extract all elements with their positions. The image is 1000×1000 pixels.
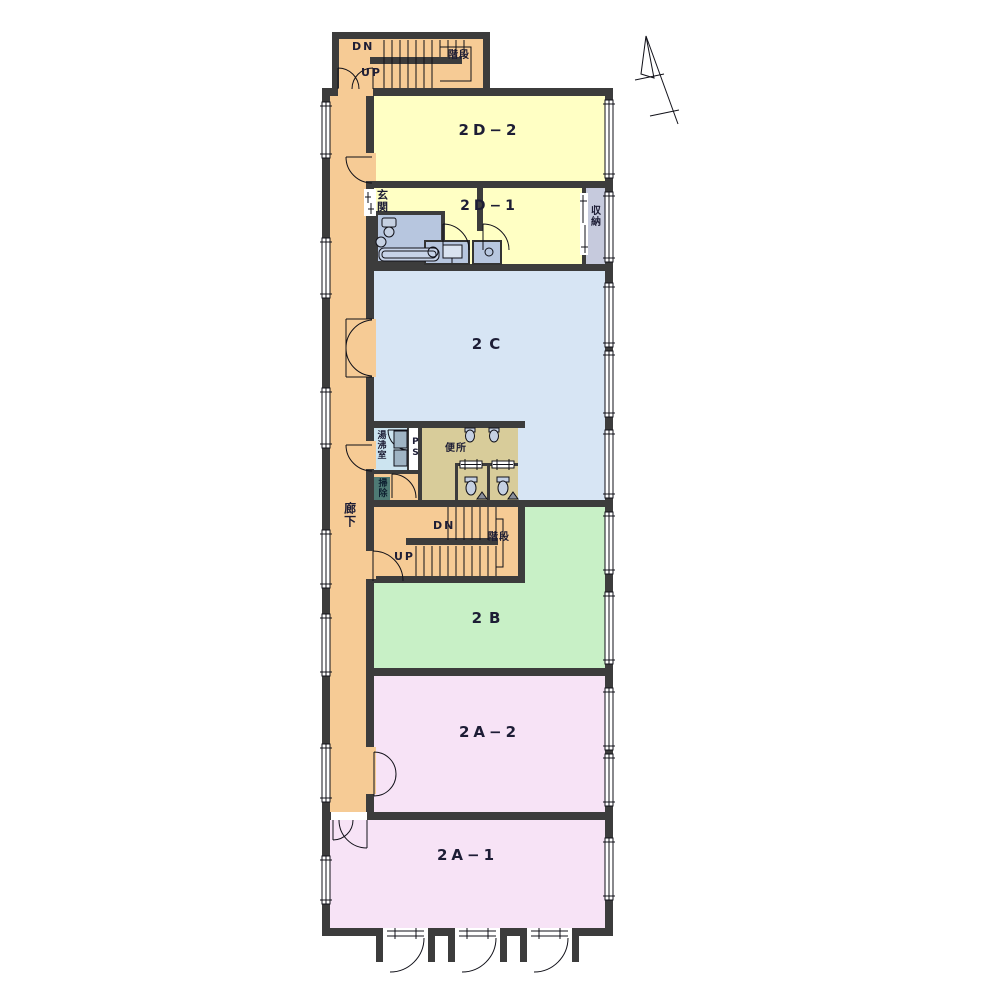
room-2b-upper [525, 507, 605, 583]
kitchen-counter [424, 240, 470, 265]
stair-top-dn-label: DN [352, 41, 374, 53]
door-bay [455, 936, 500, 962]
cleaning-label: 掃除 [376, 478, 385, 498]
storage-label: 収納 [588, 205, 599, 227]
wall [458, 463, 488, 466]
wall [448, 928, 455, 962]
stair-top-up-label: UP [361, 67, 382, 79]
wall [572, 928, 579, 962]
stair-mid-label: 階段 [488, 533, 510, 544]
toilet-label: 便所 [445, 444, 467, 455]
room-label-2c: 2C [374, 337, 605, 353]
door-opening [364, 747, 376, 794]
door-bay [527, 936, 572, 962]
stair-mid-dn-label: DN [433, 520, 455, 532]
kitchen-counter [472, 240, 502, 265]
room-label-2a-2: 2A−2 [374, 725, 605, 741]
wall [490, 463, 518, 466]
wall [487, 463, 490, 500]
room-label-2b: 2B [374, 611, 605, 627]
room-2a-2 [374, 676, 605, 812]
room-label-2d-2: 2D−2 [374, 123, 605, 139]
wall [374, 470, 422, 474]
wall [500, 928, 507, 962]
corridor [330, 96, 366, 820]
door-opening [364, 153, 376, 181]
pipe-space-label: PS [410, 437, 419, 459]
wall [376, 928, 383, 962]
hot-water-label: 湯沸室 [375, 430, 384, 460]
wall [366, 576, 525, 583]
wall [366, 421, 525, 428]
wall [407, 428, 409, 470]
stair-top-label: 階段 [448, 51, 470, 62]
wall [518, 507, 525, 583]
door-opening [455, 928, 500, 937]
wall [366, 264, 613, 271]
room-label-2a-1: 2A−1 [330, 848, 605, 864]
door-opening [364, 551, 376, 579]
room-2a-1 [330, 820, 605, 928]
wall [366, 500, 613, 507]
north-arrow-icon [635, 36, 679, 124]
wall [322, 88, 330, 936]
wall [428, 928, 435, 962]
wall [455, 463, 458, 500]
room-label-2d-1: 2D−1 [374, 199, 605, 214]
stair-landing-bar [406, 538, 498, 545]
door-bay [383, 936, 428, 962]
door-opening [338, 88, 373, 96]
stair-mid-up-label: UP [394, 551, 415, 563]
wall [605, 88, 613, 936]
door-opening [331, 812, 367, 820]
wall [520, 928, 527, 962]
wall [366, 181, 613, 188]
wall [366, 668, 613, 676]
floor-plan: DN UP 階段 2D−2 玄関 2D−1 収納 2C 湯沸室 PS 便所 掃除… [0, 0, 1000, 1000]
corridor-label: 廊下 [343, 502, 356, 528]
door-opening [527, 928, 572, 937]
door-opening [383, 928, 428, 937]
